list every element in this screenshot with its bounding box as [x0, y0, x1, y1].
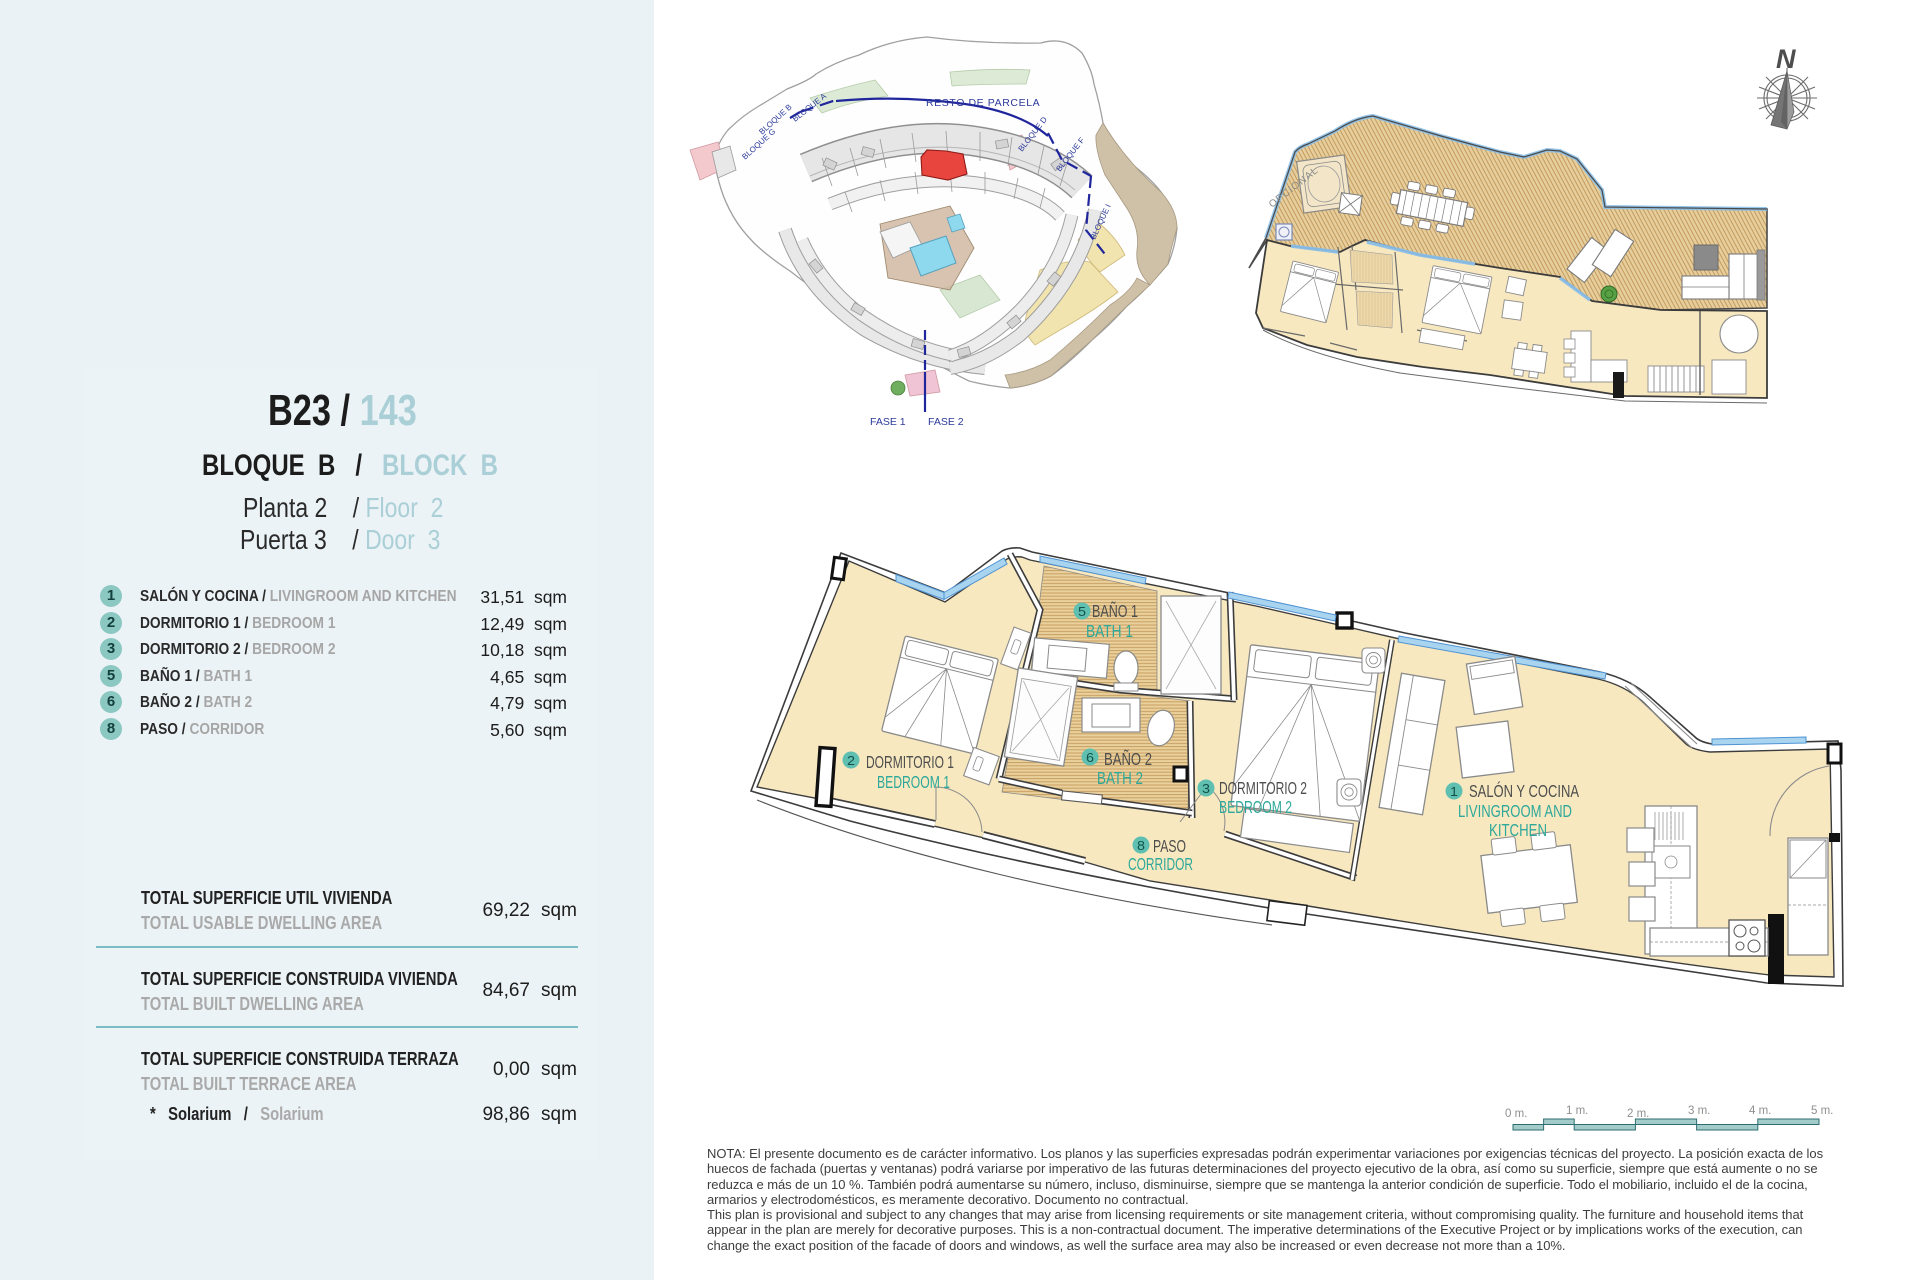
svg-text:BEDROOM 1: BEDROOM 1 [877, 772, 950, 792]
svg-text:5 m.: 5 m. [1811, 1105, 1833, 1117]
svg-text:5: 5 [1078, 604, 1086, 619]
svg-text:8: 8 [1137, 838, 1145, 853]
svg-text:6: 6 [1086, 750, 1094, 765]
svg-text:1: 1 [1450, 784, 1458, 799]
svg-text:2: 2 [847, 753, 855, 768]
svg-text:BAÑO 1: BAÑO 1 [1092, 600, 1138, 621]
svg-text:LIVINGROOM AND: LIVINGROOM AND [1458, 801, 1572, 821]
svg-text:4 m.: 4 m. [1749, 1105, 1771, 1117]
svg-text:N: N [1776, 44, 1796, 74]
svg-text:BATH 2: BATH 2 [1097, 768, 1143, 788]
svg-text:BAÑO 2: BAÑO 2 [1104, 748, 1152, 769]
svg-text:3: 3 [1202, 781, 1210, 796]
svg-text:KITCHEN: KITCHEN [1489, 820, 1547, 840]
svg-text:1 m.: 1 m. [1566, 1105, 1588, 1117]
svg-text:CORRIDOR: CORRIDOR [1128, 854, 1193, 874]
svg-text:FASE 2: FASE 2 [928, 416, 964, 428]
svg-text:PASO: PASO [1153, 836, 1186, 856]
svg-text:FASE 1: FASE 1 [870, 416, 906, 428]
svg-text:3 m.: 3 m. [1688, 1105, 1710, 1117]
svg-text:RESTO DE PARCELA: RESTO DE PARCELA [926, 97, 1040, 109]
svg-text:BATH 1: BATH 1 [1086, 621, 1133, 641]
svg-text:2 m.: 2 m. [1627, 1108, 1649, 1120]
svg-text:0 m.: 0 m. [1505, 1108, 1527, 1120]
svg-text:DORMITORIO 1: DORMITORIO 1 [866, 752, 954, 772]
svg-text:BEDROOM 2: BEDROOM 2 [1219, 797, 1292, 817]
svg-text:SALÓN Y COCINA: SALÓN Y COCINA [1469, 780, 1579, 801]
svg-text:DORMITORIO 2: DORMITORIO 2 [1219, 778, 1307, 798]
